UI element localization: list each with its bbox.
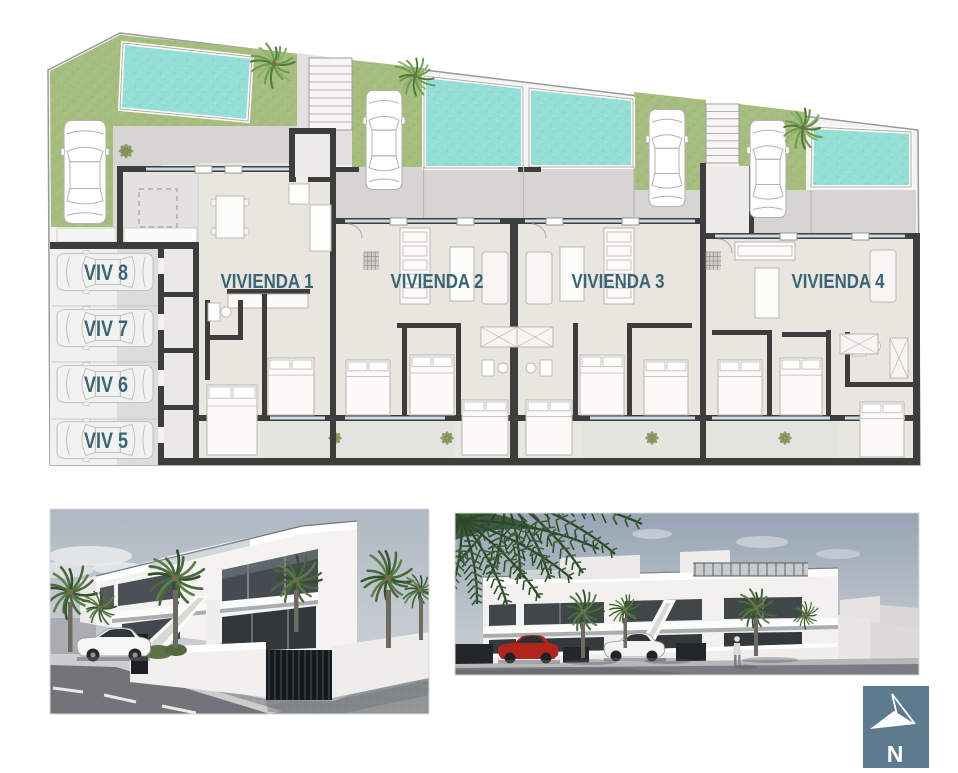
svg-text:VIVIENDA 2: VIVIENDA 2 <box>391 271 484 293</box>
svg-text:VIV 7: VIV 7 <box>84 316 128 341</box>
svg-text:VIVIENDA 1: VIVIENDA 1 <box>221 271 314 293</box>
svg-text:N: N <box>887 741 904 767</box>
svg-text:VIV 8: VIV 8 <box>84 260 128 285</box>
svg-text:VIVIENDA 3: VIVIENDA 3 <box>572 271 665 293</box>
svg-text:VIVIENDA 4: VIVIENDA 4 <box>792 271 886 293</box>
svg-text:VIV 5: VIV 5 <box>84 428 128 453</box>
svg-text:VIV 6: VIV 6 <box>84 372 128 397</box>
